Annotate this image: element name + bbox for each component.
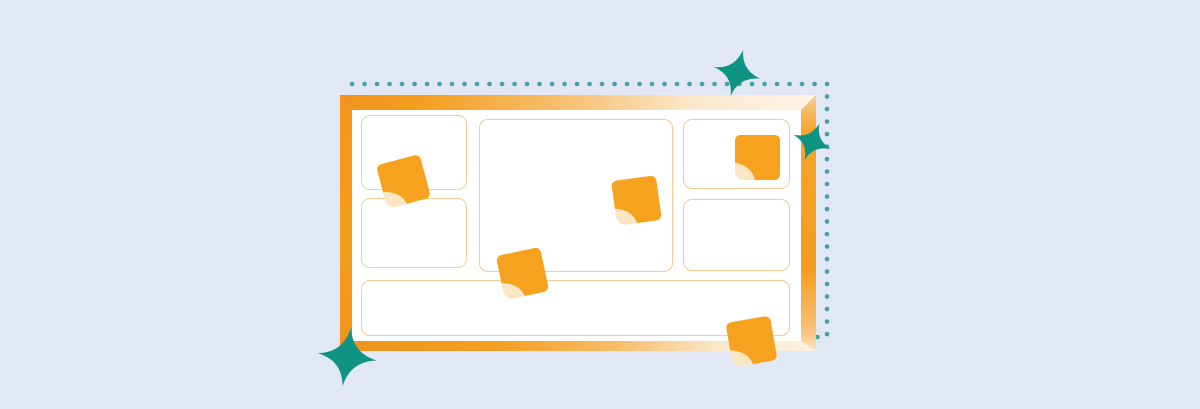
whiteboard-frame [340, 95, 816, 351]
frame-edge-left [340, 95, 352, 351]
sticky-note [611, 175, 662, 226]
sparkle-icon [312, 322, 382, 392]
illustration-canvas [0, 0, 1200, 409]
sticky-note [735, 135, 780, 180]
panel-bottom-right [683, 199, 790, 271]
sticky-note [725, 315, 777, 367]
whiteboard-surface [352, 110, 801, 341]
sticky-note [496, 247, 549, 300]
panel-bottom-left [361, 198, 467, 268]
